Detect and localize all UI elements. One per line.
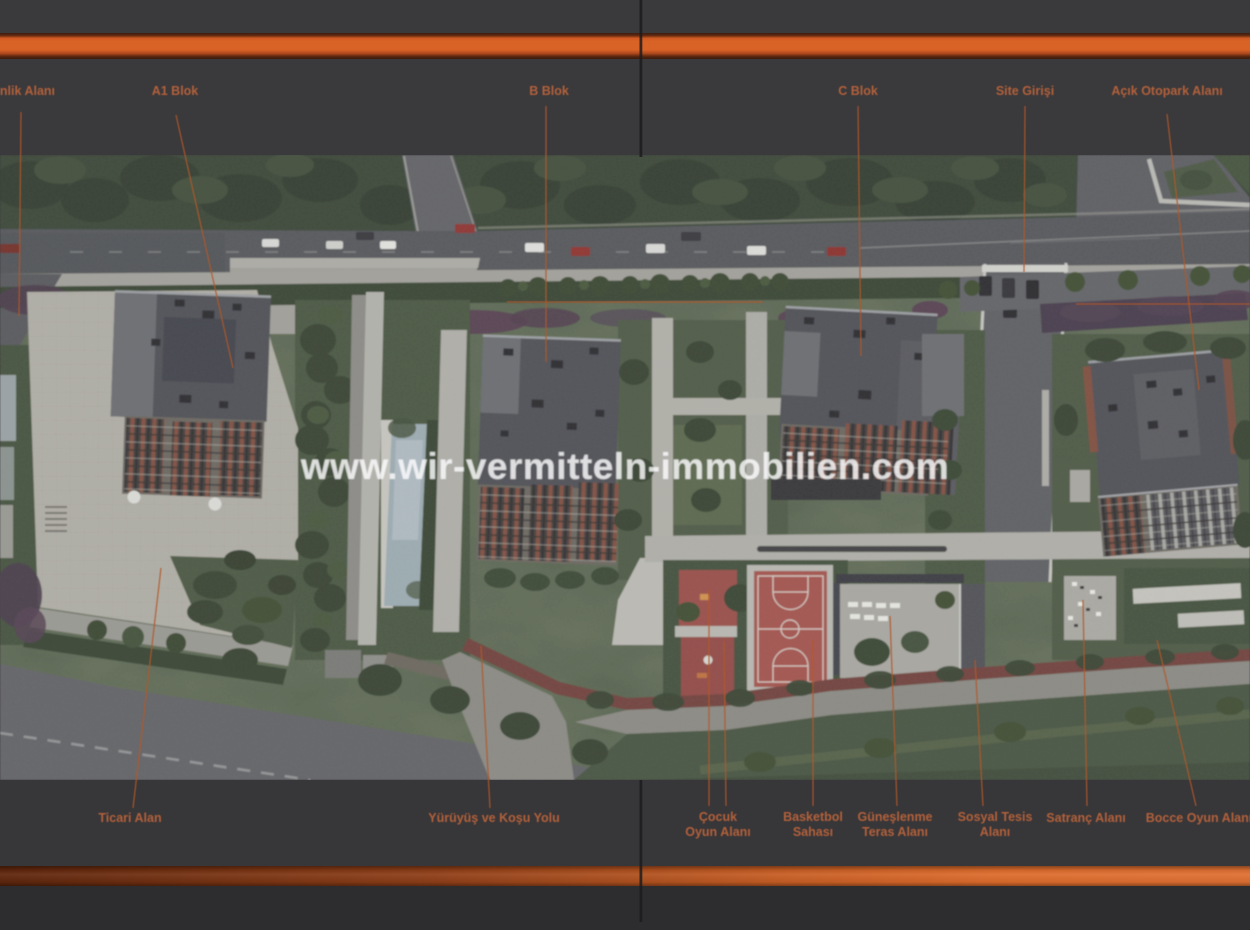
svg-text:Oyun Alanı: Oyun Alanı — [685, 825, 751, 839]
svg-text:B Blok: B Blok — [529, 84, 569, 98]
svg-text:Teras Alanı: Teras Alanı — [862, 825, 928, 839]
svg-text:Ticari Alan: Ticari Alan — [98, 811, 161, 825]
svg-text:Çocuk: Çocuk — [699, 810, 737, 824]
svg-text:Sosyal Tesis: Sosyal Tesis — [958, 810, 1033, 824]
svg-text:Güneşlenme: Güneşlenme — [857, 810, 932, 824]
svg-text:Satranç Alanı: Satranç Alanı — [1046, 811, 1125, 825]
svg-text:www.wir-vermitteln-immobilien.: www.wir-vermitteln-immobilien.com — [300, 446, 949, 487]
svg-text:Açık Otopark Alanı: Açık Otopark Alanı — [1111, 84, 1222, 98]
svg-text:Etkinlik Alanı: Etkinlik Alanı — [0, 84, 55, 98]
svg-text:Site Girişi: Site Girişi — [996, 84, 1054, 98]
svg-text:C Blok: C Blok — [838, 84, 878, 98]
svg-text:Sahası: Sahası — [793, 825, 833, 839]
svg-text:Basketbol: Basketbol — [783, 810, 843, 824]
svg-text:A1 Blok: A1 Blok — [152, 84, 199, 98]
svg-text:Yürüyüş ve Koşu Yolu: Yürüyüş ve Koşu Yolu — [428, 811, 560, 825]
svg-text:Alanı: Alanı — [980, 825, 1011, 839]
svg-text:Bocce Oyun Alanı: Bocce Oyun Alanı — [1146, 811, 1250, 825]
